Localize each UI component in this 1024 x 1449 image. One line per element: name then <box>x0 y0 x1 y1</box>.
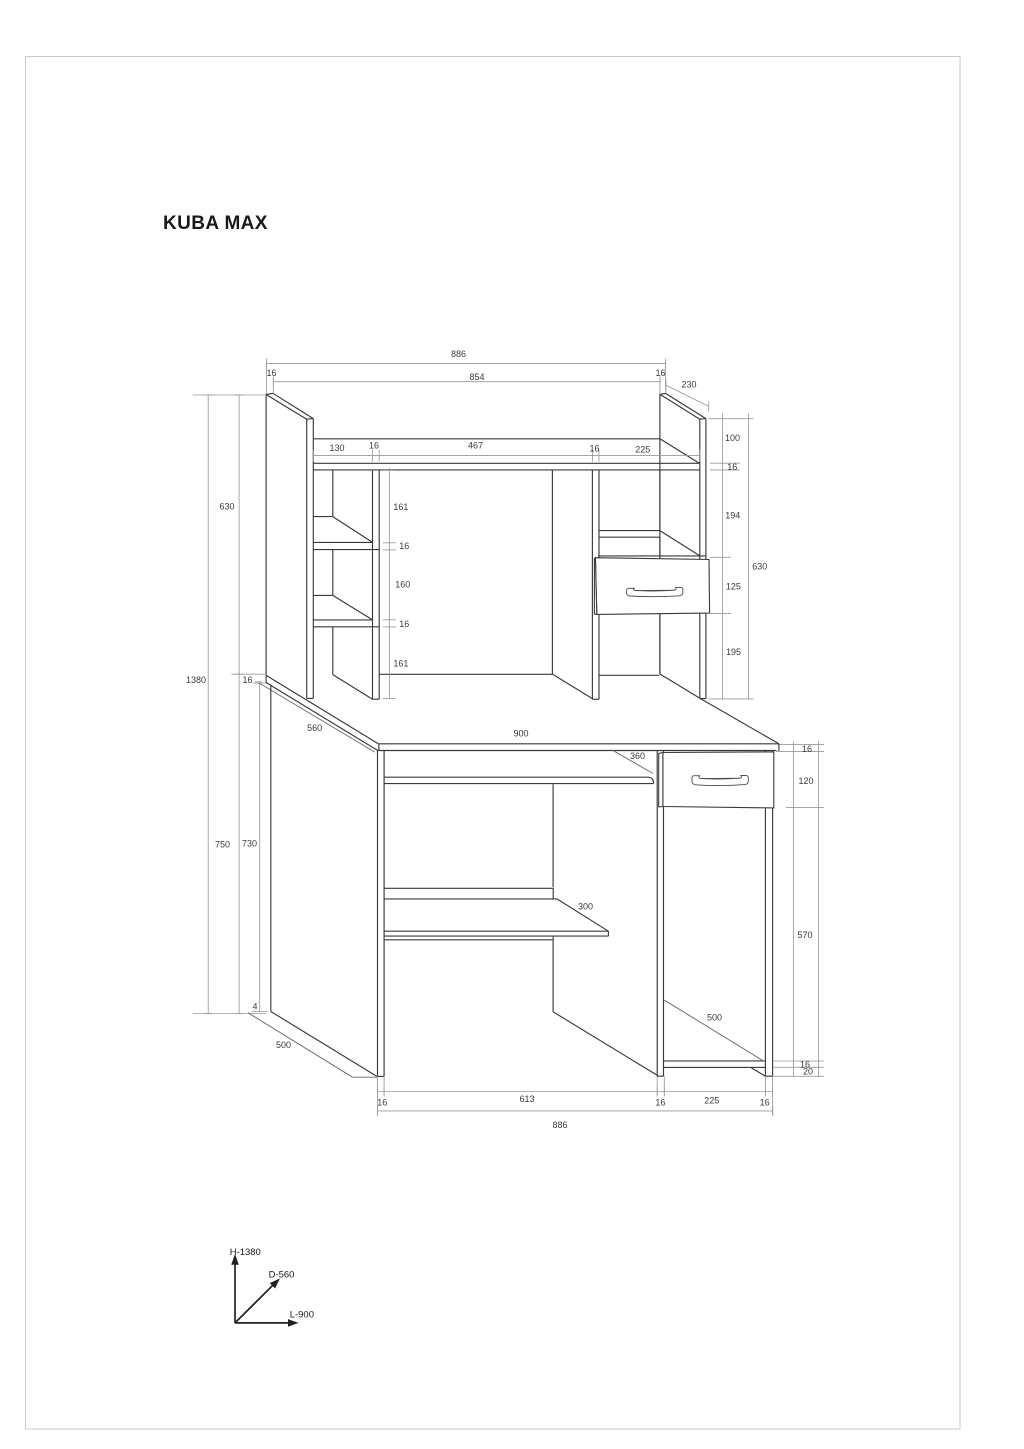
svg-text:16: 16 <box>377 1098 387 1108</box>
svg-text:730: 730 <box>242 839 257 849</box>
svg-text:886: 886 <box>451 349 466 359</box>
svg-text:360: 360 <box>630 751 645 761</box>
svg-text:467: 467 <box>468 441 483 451</box>
svg-text:230: 230 <box>681 380 696 390</box>
svg-text:560: 560 <box>307 723 322 733</box>
svg-text:225: 225 <box>704 1096 719 1106</box>
svg-text:130: 130 <box>329 443 344 453</box>
svg-text:886: 886 <box>552 1120 567 1130</box>
svg-text:630: 630 <box>752 562 767 572</box>
svg-text:16: 16 <box>727 462 737 472</box>
svg-text:16: 16 <box>802 744 812 754</box>
svg-text:100: 100 <box>725 433 740 443</box>
svg-text:16: 16 <box>399 619 409 629</box>
svg-text:16: 16 <box>399 541 409 551</box>
svg-text:160: 160 <box>395 580 410 590</box>
svg-text:H-1380: H-1380 <box>230 1247 261 1258</box>
svg-text:161: 161 <box>393 659 408 669</box>
svg-text:16: 16 <box>266 368 276 378</box>
svg-text:300: 300 <box>578 902 593 912</box>
svg-text:16: 16 <box>242 675 252 685</box>
svg-text:161: 161 <box>393 502 408 512</box>
svg-text:L-900: L-900 <box>290 1310 314 1321</box>
svg-text:613: 613 <box>519 1094 534 1104</box>
svg-text:195: 195 <box>726 647 741 657</box>
svg-text:194: 194 <box>725 510 740 520</box>
svg-text:500: 500 <box>276 1040 291 1050</box>
svg-text:1380: 1380 <box>186 675 206 685</box>
svg-text:20: 20 <box>803 1067 813 1077</box>
svg-text:16: 16 <box>655 1098 665 1108</box>
svg-text:125: 125 <box>726 582 741 592</box>
svg-text:KUBA MAX: KUBA MAX <box>163 213 268 234</box>
svg-text:16: 16 <box>589 443 599 453</box>
svg-text:500: 500 <box>707 1013 722 1023</box>
svg-text:225: 225 <box>635 444 650 454</box>
svg-text:4: 4 <box>252 1002 257 1012</box>
svg-text:750: 750 <box>215 840 230 850</box>
svg-text:D-560: D-560 <box>269 1269 295 1280</box>
svg-text:900: 900 <box>513 729 528 739</box>
svg-text:16: 16 <box>369 440 379 450</box>
svg-text:570: 570 <box>797 930 812 940</box>
svg-text:120: 120 <box>798 776 813 786</box>
svg-text:854: 854 <box>469 372 484 382</box>
svg-text:16: 16 <box>655 368 665 378</box>
svg-text:630: 630 <box>219 502 234 512</box>
svg-text:16: 16 <box>760 1098 770 1108</box>
